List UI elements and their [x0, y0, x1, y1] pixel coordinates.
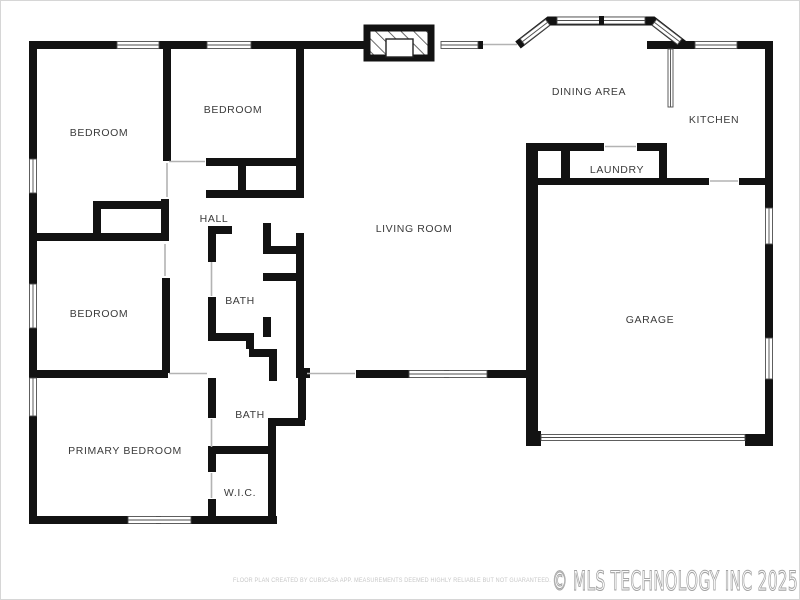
room-label-hall: HALL [200, 213, 229, 225]
room-label-primary-bedroom: PRIMARY BEDROOM [68, 445, 182, 457]
room-label-dining-area: DINING AREA [552, 86, 626, 98]
kitchen-counter [668, 49, 673, 107]
room-label-bedroom-top-middle: BEDROOM [204, 104, 262, 116]
room-label-bedroom-left: BEDROOM [70, 308, 128, 320]
floor-plan-canvas: BEDROOM BEDROOM HALL BEDROOM BATH BATH P… [0, 0, 800, 600]
room-label-laundry: LAUNDRY [590, 164, 644, 176]
mls-watermark: © MLS TECHNOLOGY INC 2025 [552, 566, 798, 597]
fireplace [367, 28, 431, 58]
room-label-garage: GARAGE [626, 314, 675, 326]
room-label-bath-upper: BATH [225, 295, 255, 307]
garage-door [541, 435, 745, 441]
room-label-bath-lower: BATH [235, 409, 265, 421]
room-label-wic: W.I.C. [224, 487, 256, 499]
footer: FLOOR PLAN CREATED BY CUBICASA APP. MEAS… [233, 566, 798, 597]
room-label-kitchen: KITCHEN [689, 114, 739, 126]
disclaimer-text: FLOOR PLAN CREATED BY CUBICASA APP. MEAS… [233, 577, 551, 584]
room-label-living-room: LIVING ROOM [376, 223, 453, 235]
floor-plan-drawing: BEDROOM BEDROOM HALL BEDROOM BATH BATH P… [1, 1, 800, 600]
bay-window [518, 16, 684, 45]
room-label-bedroom-top-left: BEDROOM [70, 127, 128, 139]
